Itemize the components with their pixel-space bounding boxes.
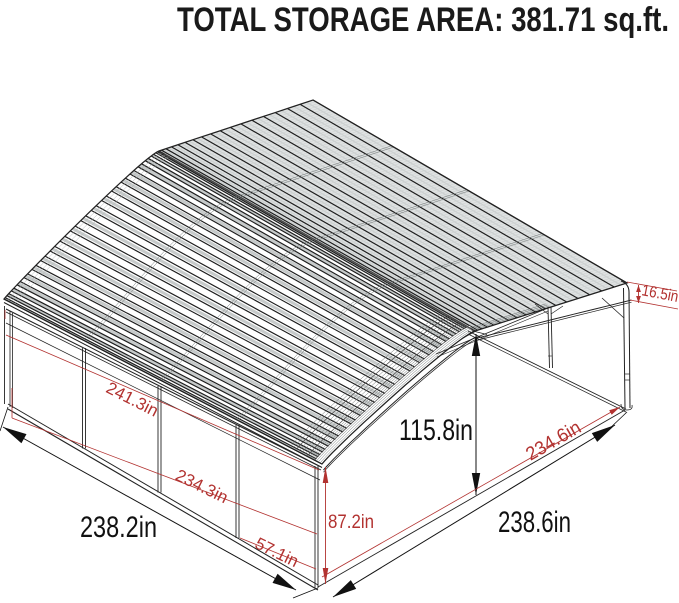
- svg-text:16.5in: 16.5in: [640, 282, 679, 306]
- svg-text:234.6in: 234.6in: [523, 417, 585, 465]
- svg-text:238.2in: 238.2in: [80, 511, 157, 544]
- svg-text:TOTAL STORAGE AREA: 381.71 sq.: TOTAL STORAGE AREA: 381.71 sq.ft.: [177, 1, 669, 39]
- svg-text:115.8in: 115.8in: [399, 414, 473, 447]
- svg-text:238.6in: 238.6in: [498, 506, 571, 539]
- svg-text:87.2in: 87.2in: [328, 512, 374, 533]
